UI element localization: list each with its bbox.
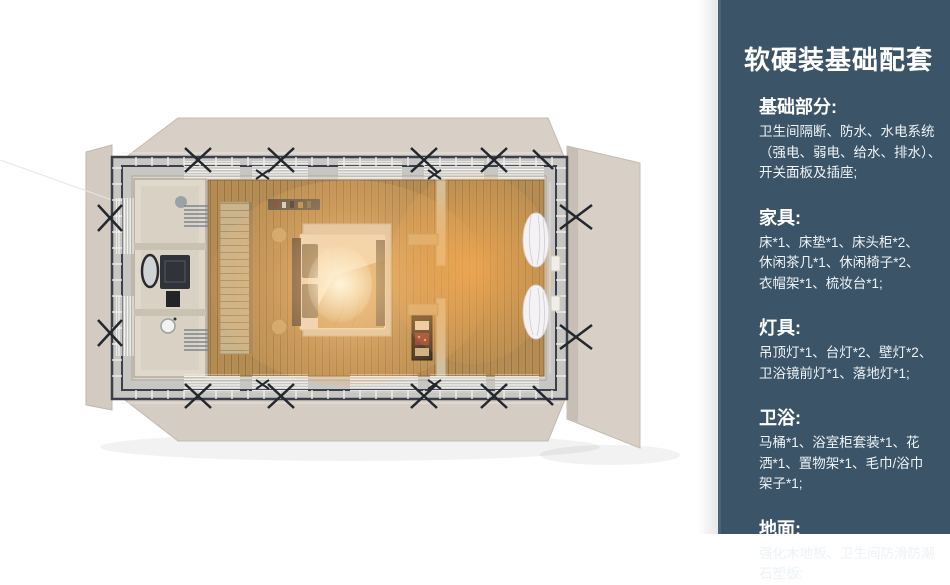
- floorplan-render: [0, 0, 718, 534]
- page-title: 软硬装基础配套: [744, 44, 942, 76]
- sidebar-section-flooring: 地面: 强化木地板、卫生间防滑防潮 石塑板;: [759, 518, 942, 585]
- section-body: 卫生间隔断、防水、水电系统 （强电、弱电、给水、排水）、 开关面板及插座;: [759, 122, 943, 184]
- headboard: [292, 238, 301, 326]
- wall-lamp: [551, 256, 560, 271]
- section-label: 灯具:: [759, 317, 942, 339]
- sidebar-section-basics: 基础部分: 卫生间隔断、防水、水电系统 （强电、弱电、给水、排水）、 开关面板及…: [759, 96, 942, 184]
- slide: 软硬装基础配套 基础部分: 卫生间隔断、防水、水电系统 （强电、弱电、给水、排水…: [0, 0, 950, 534]
- vanity-mirror: [142, 255, 158, 287]
- sidebar-section-lighting: 灯具: 吊顶灯*1、台灯*2、壁灯*2、 卫浴镜前灯*1、落地灯*1;: [759, 317, 942, 384]
- wall-lamp: [551, 296, 560, 311]
- bedside-stool: [271, 227, 287, 243]
- section-label: 地面:: [759, 518, 942, 540]
- bedside-stool: [271, 319, 287, 335]
- section-label: 基础部分:: [759, 96, 942, 118]
- edge-shadow: [698, 0, 718, 534]
- section-body: 强化木地板、卫生间防滑防潮 石塑板;: [759, 544, 943, 585]
- section-body: 马桶*1、浴室柜套装*1、花 洒*1、置物架*1、毛巾/浴巾 架子*1;: [759, 433, 943, 495]
- sidebar-section-furniture: 家具: 床*1、床垫*1、床头柜*2、 休闲茶几*1、休闲椅子*2、 衣帽架*1…: [759, 207, 942, 295]
- foot-bench: [376, 240, 385, 326]
- section-body: 床*1、床垫*1、床头柜*2、 休闲茶几*1、休闲椅子*2、 衣帽架*1、梳妆台…: [759, 233, 943, 295]
- section-label: 家具:: [759, 207, 942, 229]
- sidebar: 软硬装基础配套 基础部分: 卫生间隔断、防水、水电系统 （强电、弱电、给水、排水…: [718, 0, 950, 534]
- bathroom-area: [134, 179, 208, 377]
- floorplan-panel: [0, 0, 718, 534]
- sidebar-section-bathroom: 卫浴: 马桶*1、浴室柜套装*1、花 洒*1、置物架*1、毛巾/浴巾 架子*1;: [759, 407, 942, 495]
- wall-shelf: [268, 199, 320, 210]
- section-label: 卫浴:: [759, 407, 942, 429]
- wardrobe-partition: [220, 202, 252, 354]
- display-cabinet: [412, 316, 432, 360]
- toilet: [161, 319, 175, 333]
- section-body: 吊顶灯*1、台灯*2、壁灯*2、 卫浴镜前灯*1、落地灯*1;: [759, 343, 943, 384]
